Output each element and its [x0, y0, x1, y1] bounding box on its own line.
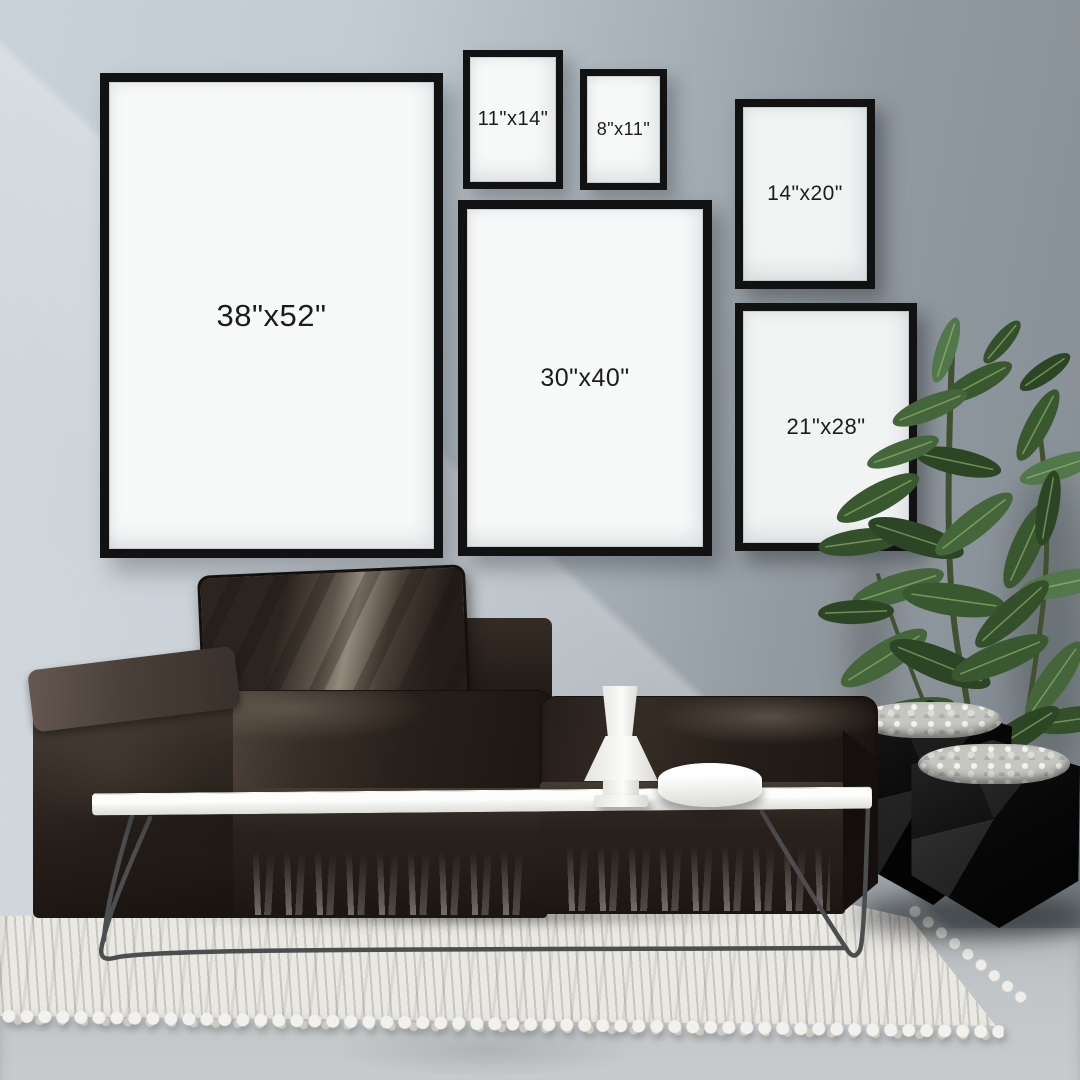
frame-size-label: 21"x28"	[786, 414, 865, 440]
frame-38x52: 38"x52"	[100, 73, 443, 558]
frame-11x14: 11"x14"	[463, 50, 563, 189]
pebbles	[918, 744, 1070, 784]
frame-size-label: 30"x40"	[540, 364, 629, 393]
frame-mat: 8"x11"	[587, 76, 660, 183]
vase	[594, 795, 648, 807]
frame-size-label: 38"x52"	[217, 298, 327, 334]
living-room-frame-size-mockup: 38"x52" 11"x14" 8"x11" 14"x20" 30"x40" 2…	[0, 0, 1080, 1080]
frame-mat: 30"x40"	[467, 209, 703, 547]
frame-size-label: 11"x14"	[478, 108, 549, 131]
frame-8x11: 8"x11"	[580, 69, 667, 190]
bowl	[658, 763, 762, 807]
frame-size-label: 8"x11"	[597, 119, 650, 140]
frame-mat: 11"x14"	[470, 57, 556, 182]
frame-14x20: 14"x20"	[735, 99, 875, 289]
frame-mat: 21"x28"	[743, 311, 909, 543]
ottoman-side	[843, 730, 878, 912]
frame-size-label: 14"x20"	[767, 182, 843, 206]
frame-mat: 14"x20"	[743, 107, 867, 281]
plant-wall-shadow	[1008, 470, 1080, 770]
pebbles	[858, 702, 1002, 738]
sofa-seat-cushion	[205, 690, 553, 802]
frame-21x28: 21"x28"	[735, 303, 917, 551]
frame-mat: 38"x52"	[109, 82, 434, 549]
frame-30x40: 30"x40"	[458, 200, 712, 556]
